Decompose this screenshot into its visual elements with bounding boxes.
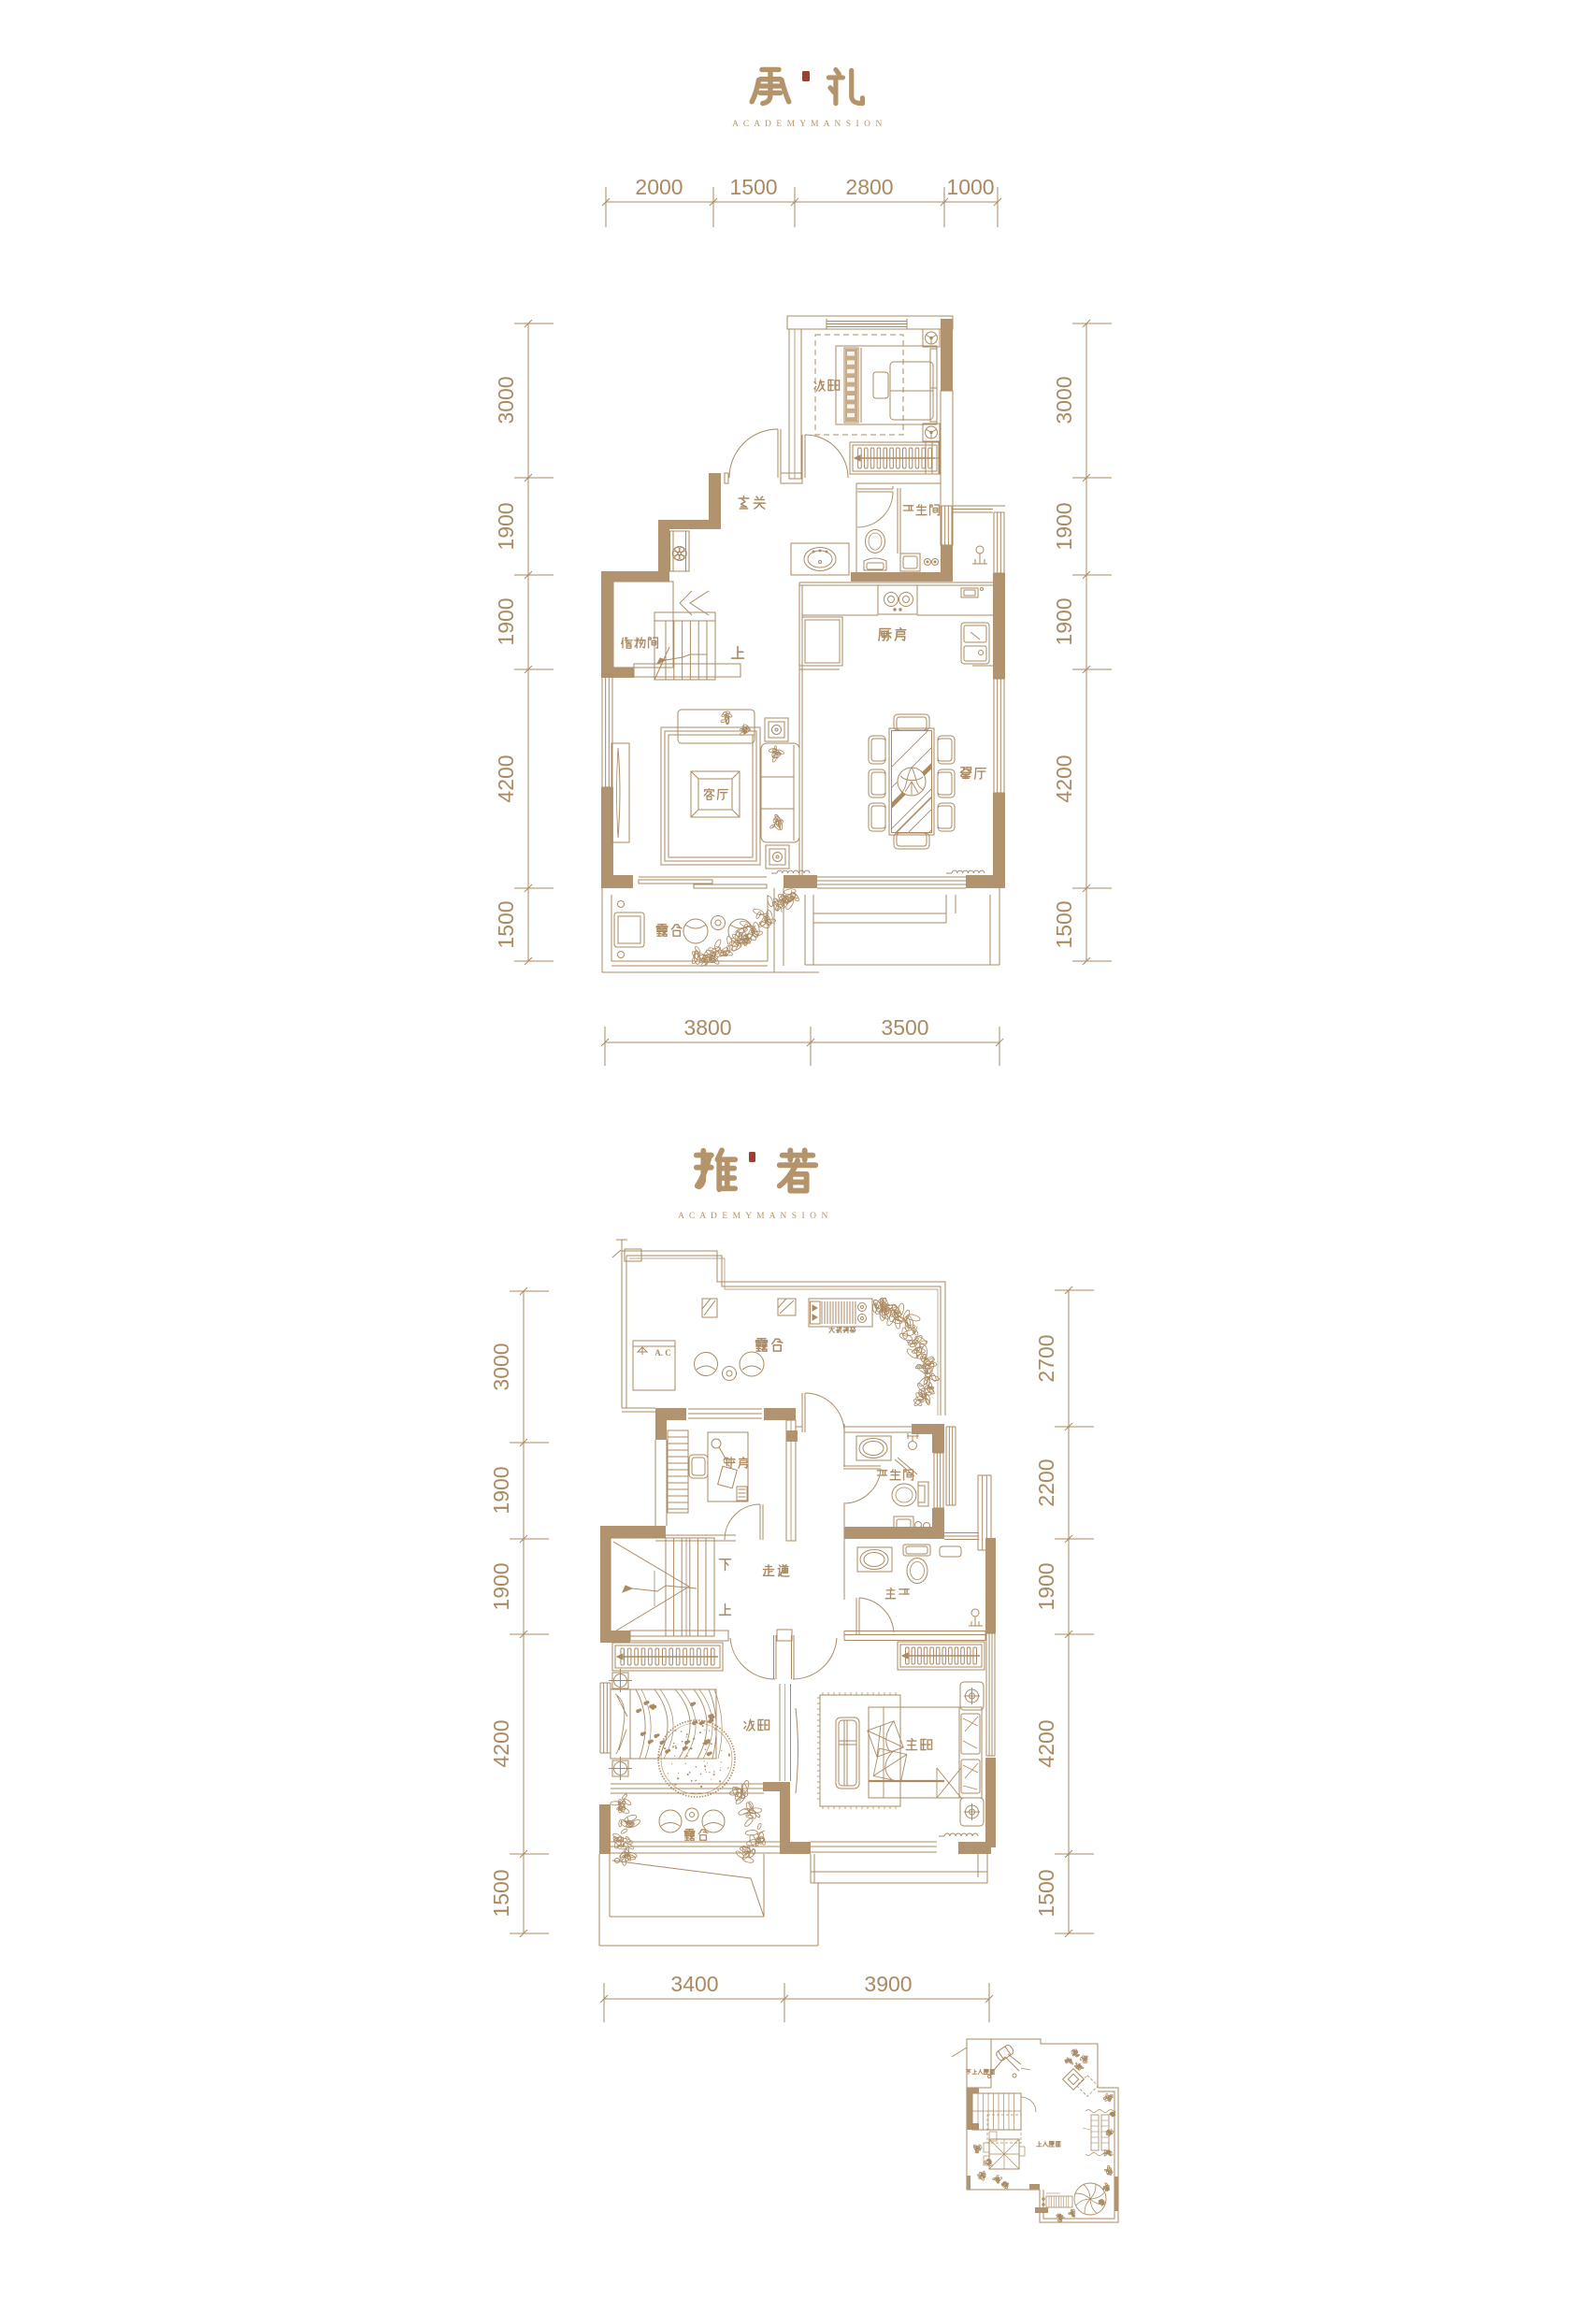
svg-text:4200: 4200 [1034, 1719, 1058, 1767]
svg-text:A. C: A. C [654, 1348, 671, 1358]
svg-text:1000: 1000 [946, 175, 994, 199]
svg-text:2200: 2200 [1034, 1458, 1058, 1506]
svg-text:1500: 1500 [1052, 900, 1076, 948]
svg-text:4200: 4200 [494, 754, 518, 802]
svg-text:4200: 4200 [489, 1719, 513, 1767]
svg-text:2700: 2700 [1034, 1334, 1058, 1382]
svg-text:1900: 1900 [1034, 1562, 1058, 1610]
svg-text:3500: 3500 [881, 1015, 928, 1040]
svg-text:1900: 1900 [489, 1466, 513, 1514]
svg-text:3000: 3000 [1052, 376, 1076, 424]
svg-text:1900: 1900 [1052, 597, 1076, 645]
svg-text:1500: 1500 [729, 175, 777, 199]
svg-text:4200: 4200 [1052, 754, 1076, 802]
svg-text:1900: 1900 [1052, 502, 1076, 550]
svg-text:3000: 3000 [494, 376, 518, 424]
svg-text:2000: 2000 [635, 175, 683, 199]
svg-text:1900: 1900 [489, 1562, 513, 1610]
svg-text:1900: 1900 [494, 502, 518, 550]
svg-text:3900: 3900 [864, 1972, 912, 1996]
svg-text:1900: 1900 [494, 597, 518, 645]
svg-text:1500: 1500 [494, 900, 518, 948]
svg-text:3400: 3400 [670, 1972, 718, 1996]
svg-text:A C A D E M Y M A N S I O N: A C A D E M Y M A N S I O N [732, 120, 884, 129]
svg-text:3800: 3800 [683, 1015, 731, 1040]
svg-text:3000: 3000 [489, 1343, 513, 1390]
svg-text:1500: 1500 [489, 1869, 513, 1917]
svg-text:1500: 1500 [1034, 1869, 1058, 1917]
svg-text:2800: 2800 [845, 175, 893, 199]
svg-text:A C A D E M Y M A N S I O N: A C A D E M Y M A N S I O N [678, 1212, 829, 1221]
